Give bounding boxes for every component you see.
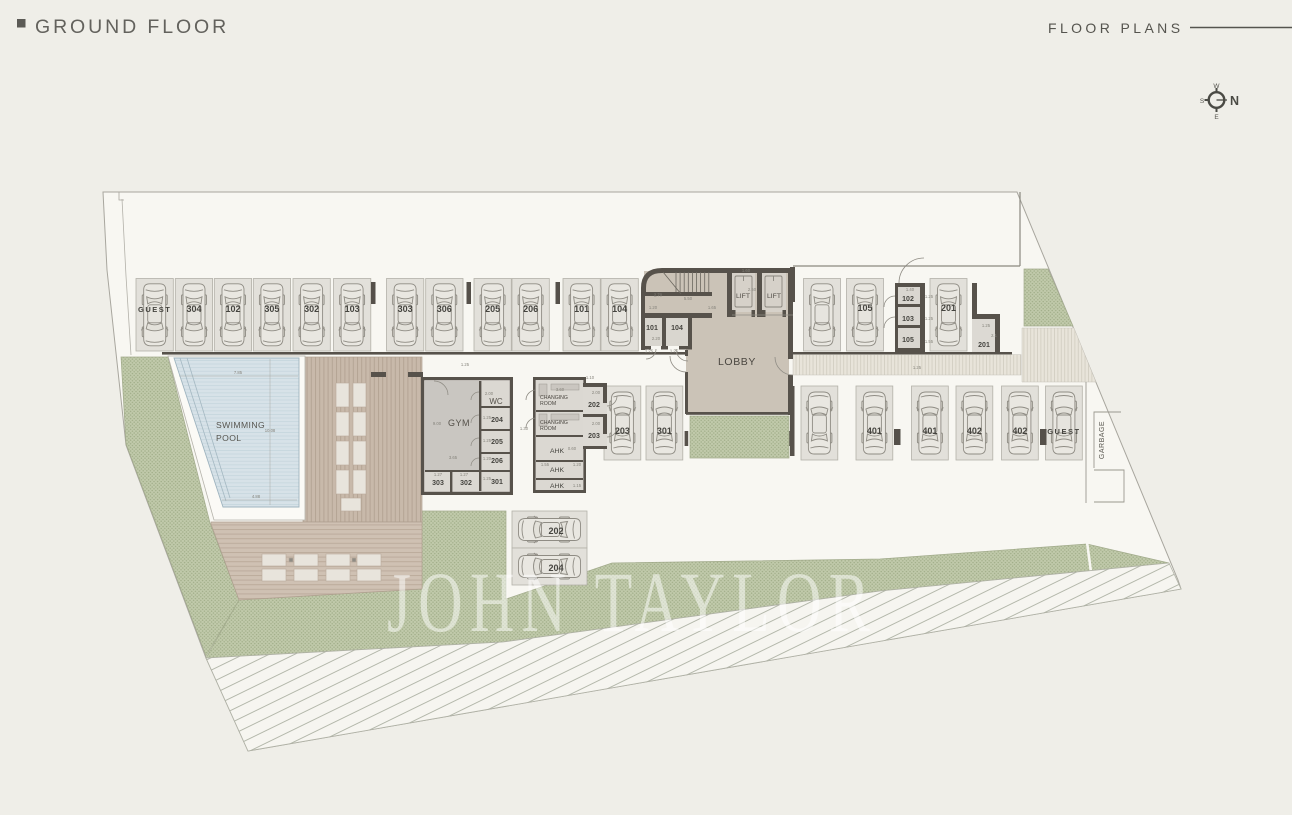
svg-text:1.20: 1.20 xyxy=(649,305,658,310)
svg-text:7.85: 7.85 xyxy=(234,370,243,375)
svg-text:GYM: GYM xyxy=(448,418,470,428)
svg-text:N: N xyxy=(1230,94,1239,108)
svg-text:102: 102 xyxy=(225,304,240,314)
svg-text:1.25: 1.25 xyxy=(483,415,492,420)
svg-text:1.25: 1.25 xyxy=(982,323,991,328)
svg-text:104: 104 xyxy=(671,325,683,332)
svg-text:1.27: 1.27 xyxy=(434,472,443,477)
svg-text:2.00: 2.00 xyxy=(592,390,601,395)
svg-text:FLOOR PLANS: FLOOR PLANS xyxy=(1048,20,1183,36)
svg-text:401: 401 xyxy=(922,426,937,436)
svg-text:1.55: 1.55 xyxy=(541,462,550,467)
svg-text:301: 301 xyxy=(657,426,672,436)
svg-text:105: 105 xyxy=(857,303,872,313)
svg-text:303: 303 xyxy=(398,304,413,314)
svg-text:305: 305 xyxy=(264,304,279,314)
svg-text:ROOM: ROOM xyxy=(540,401,556,407)
svg-text:205: 205 xyxy=(485,304,500,314)
svg-text:4.88: 4.88 xyxy=(252,494,261,499)
svg-text:AHK: AHK xyxy=(550,483,564,490)
svg-text:1.30: 1.30 xyxy=(520,426,529,431)
svg-text:1.25: 1.25 xyxy=(645,349,654,354)
svg-text:3.60: 3.60 xyxy=(556,387,565,392)
svg-text:1.65: 1.65 xyxy=(708,305,717,310)
svg-text:1.40: 1.40 xyxy=(906,287,915,292)
svg-text:1.25: 1.25 xyxy=(670,349,679,354)
svg-text:204: 204 xyxy=(491,417,503,424)
svg-text:GUEST: GUEST xyxy=(138,305,171,314)
svg-text:201: 201 xyxy=(978,342,990,349)
svg-text:2.20: 2.20 xyxy=(652,336,661,341)
svg-text:402: 402 xyxy=(1012,426,1027,436)
svg-text:302: 302 xyxy=(460,480,472,487)
svg-text:103: 103 xyxy=(345,304,360,314)
svg-text:1.10: 1.10 xyxy=(586,375,595,380)
svg-text:1.27: 1.27 xyxy=(460,472,469,477)
svg-text:9.00: 9.00 xyxy=(433,421,442,426)
svg-text:303: 303 xyxy=(432,480,444,487)
svg-text:1.25: 1.25 xyxy=(925,294,934,299)
svg-text:LIFT: LIFT xyxy=(736,293,750,300)
svg-text:GROUND FLOOR: GROUND FLOOR xyxy=(35,16,229,38)
svg-text:5.50: 5.50 xyxy=(684,296,693,301)
svg-text:206: 206 xyxy=(523,304,538,314)
svg-text:GUEST: GUEST xyxy=(1047,427,1080,436)
svg-text:10.08: 10.08 xyxy=(265,428,276,433)
svg-text:E: E xyxy=(1214,114,1219,121)
svg-text:1.25: 1.25 xyxy=(483,438,492,443)
svg-text:103: 103 xyxy=(902,316,914,323)
svg-text:101: 101 xyxy=(646,325,658,332)
svg-text:AHK: AHK xyxy=(550,448,564,455)
svg-text:ROOM: ROOM xyxy=(540,426,556,432)
svg-text:201: 201 xyxy=(941,303,956,313)
svg-text:1.15: 1.15 xyxy=(573,483,582,488)
svg-text:402: 402 xyxy=(967,426,982,436)
svg-text:LIFT: LIFT xyxy=(767,293,781,300)
svg-text:306: 306 xyxy=(437,304,452,314)
svg-text:1.25: 1.25 xyxy=(483,476,492,481)
svg-text:202: 202 xyxy=(588,402,600,409)
svg-text:206: 206 xyxy=(491,458,503,465)
svg-text:2.50: 2.50 xyxy=(748,287,757,292)
svg-text:302: 302 xyxy=(304,304,319,314)
svg-text:3.65: 3.65 xyxy=(449,455,458,460)
svg-text:401: 401 xyxy=(867,426,882,436)
svg-text:2.1: 2.1 xyxy=(991,333,997,338)
svg-text:WC: WC xyxy=(489,397,503,406)
svg-text:301: 301 xyxy=(491,479,503,486)
svg-text:1.60: 1.60 xyxy=(742,268,751,273)
svg-text:1.20: 1.20 xyxy=(483,456,492,461)
svg-text:S: S xyxy=(1200,98,1205,105)
svg-text:102: 102 xyxy=(902,296,914,303)
svg-text:101: 101 xyxy=(574,304,589,314)
svg-text:105: 105 xyxy=(902,337,914,344)
svg-text:104: 104 xyxy=(612,304,627,314)
svg-text:1.25: 1.25 xyxy=(461,362,470,367)
svg-text:1.55: 1.55 xyxy=(925,339,934,344)
svg-text:SWIMMING: SWIMMING xyxy=(216,420,265,430)
svg-text:1.25: 1.25 xyxy=(913,365,922,370)
svg-text:202: 202 xyxy=(548,526,563,536)
svg-text:LOBBY: LOBBY xyxy=(718,356,756,368)
svg-text:2.00: 2.00 xyxy=(485,391,494,396)
svg-text:2.70: 2.70 xyxy=(654,293,663,298)
svg-text:205: 205 xyxy=(491,439,503,446)
svg-text:POOL: POOL xyxy=(216,433,241,443)
svg-text:1.25: 1.25 xyxy=(925,316,934,321)
svg-text:203: 203 xyxy=(588,433,600,440)
svg-text:304: 304 xyxy=(186,304,201,314)
svg-text:AHK: AHK xyxy=(550,467,564,474)
svg-text:GARBAGE: GARBAGE xyxy=(1099,421,1106,459)
svg-text:2.00: 2.00 xyxy=(592,421,601,426)
svg-text:W: W xyxy=(1213,83,1220,90)
svg-text:1.20: 1.20 xyxy=(573,462,582,467)
svg-text:JOHN TAYLOR: JOHN TAYLOR xyxy=(387,554,877,650)
svg-text:0.60: 0.60 xyxy=(568,446,577,451)
